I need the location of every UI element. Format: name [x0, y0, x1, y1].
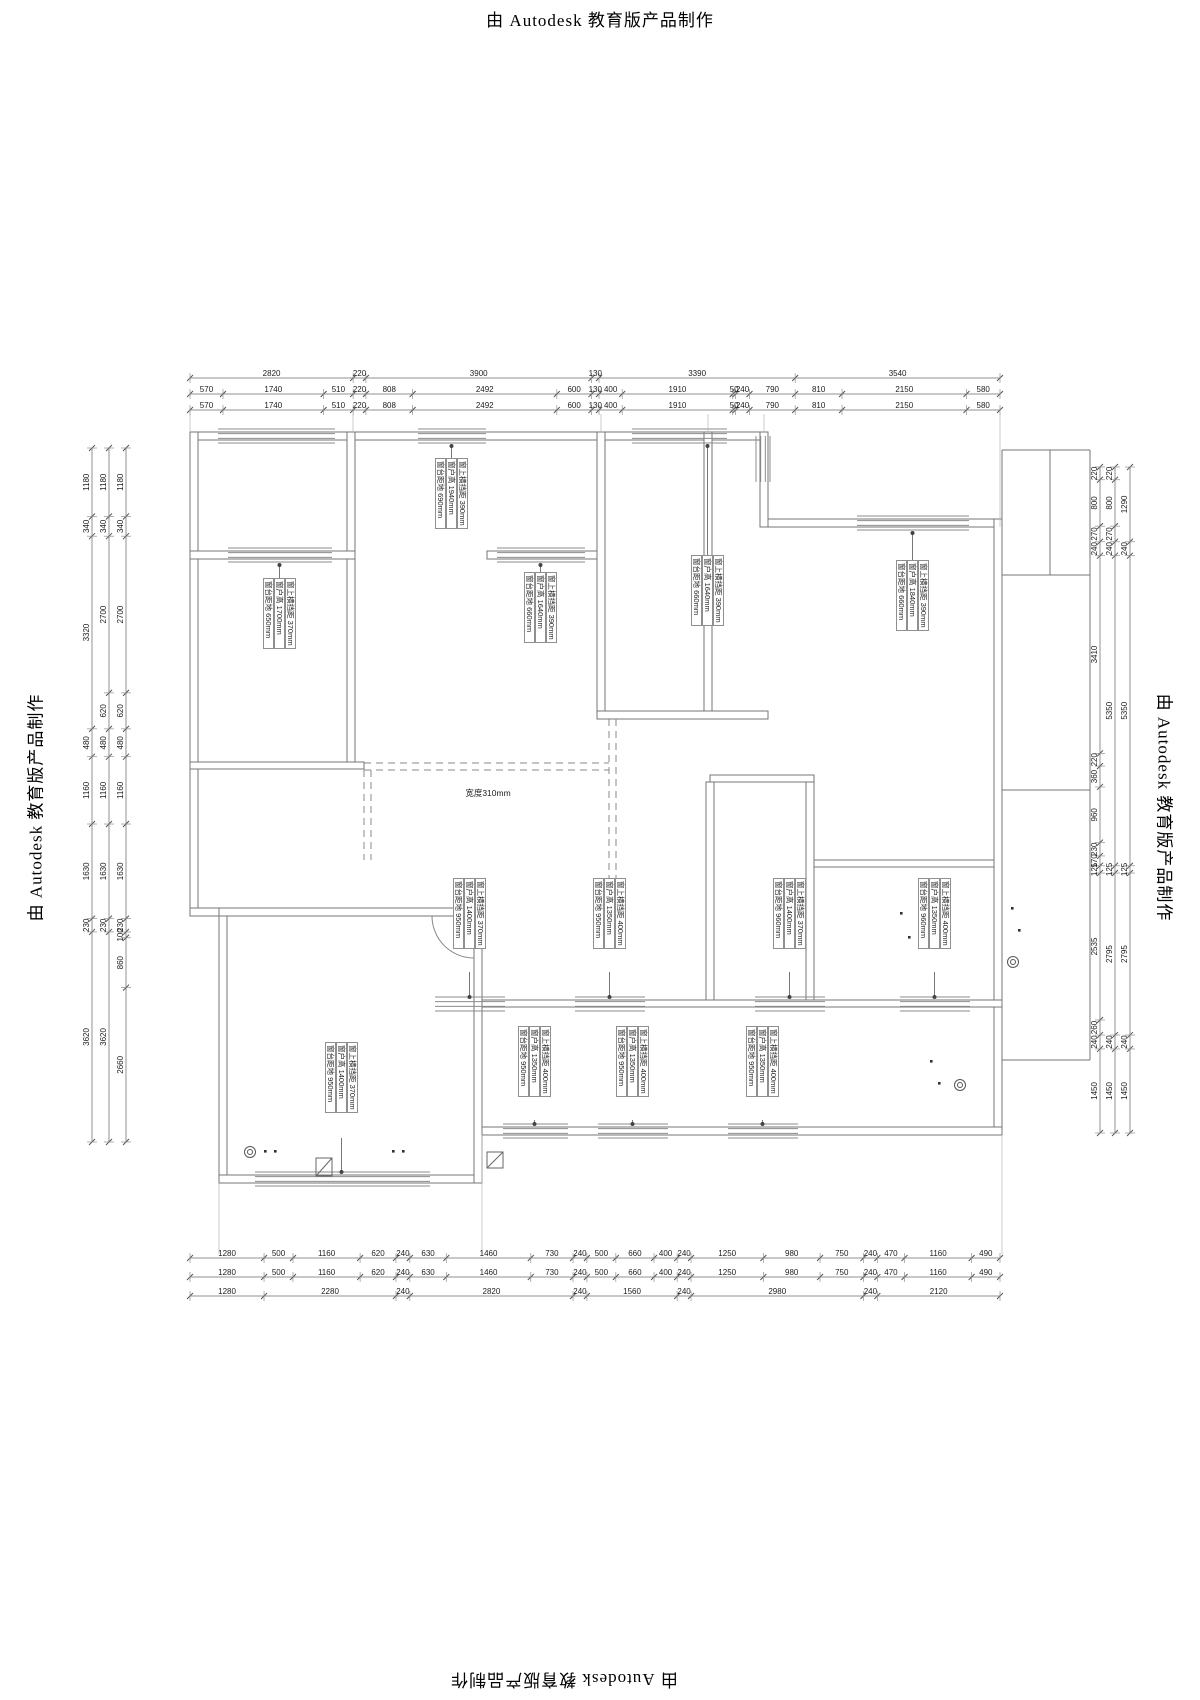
dim-value: 125: [1120, 862, 1129, 876]
dim-value: 1160: [929, 1249, 947, 1258]
dim-value: 790: [766, 385, 780, 394]
dim-value: 240: [396, 1249, 410, 1258]
dim-value: 220: [1090, 466, 1099, 480]
dim-value: 2492: [476, 401, 494, 410]
dim-value: 1280: [218, 1249, 236, 1258]
dim-value: 510: [332, 385, 346, 394]
dim-value: 1280: [218, 1287, 236, 1296]
dim-value: 730: [545, 1268, 559, 1277]
dim-value: 1250: [718, 1249, 736, 1258]
dim-value: 1250: [718, 1268, 736, 1277]
dim-value: 130: [589, 401, 603, 410]
dim-value: 240: [677, 1287, 691, 1296]
dim-value: 1180: [116, 473, 125, 491]
dim-value: 2820: [263, 369, 281, 378]
dim-value: 810: [812, 401, 826, 410]
dim-value: 470: [884, 1268, 898, 1277]
dim-value: 3320: [82, 623, 91, 641]
dim-value: 240: [396, 1268, 410, 1277]
dim-value: 3620: [82, 1028, 91, 1046]
opening-width-label: 宽度310mm: [465, 788, 510, 798]
dim-value: 400: [659, 1249, 673, 1258]
dim-value: 600: [567, 401, 581, 410]
dim-value: 500: [272, 1249, 286, 1258]
dim-value: 240: [573, 1287, 587, 1296]
dim-value: 570: [200, 385, 214, 394]
dim-value: 1460: [480, 1268, 498, 1277]
dim-value: 340: [116, 519, 125, 533]
dim-value: 400: [604, 401, 618, 410]
dim-value: 5350: [1120, 701, 1129, 719]
dim-value: 630: [421, 1268, 435, 1277]
dim-value: 960: [1090, 808, 1099, 822]
dim-value: 1630: [116, 862, 125, 880]
dim-value: 510: [332, 401, 346, 410]
dim-value: 1740: [264, 401, 282, 410]
dim-value: 240: [573, 1268, 587, 1277]
dim-value: 2660: [116, 1055, 125, 1073]
dim-value: 600: [567, 385, 581, 394]
dim-value: 500: [595, 1249, 609, 1258]
floor-plan-drawing: 2820220390013033903540570174051022080824…: [0, 0, 1200, 1700]
dim-value: 400: [659, 1268, 673, 1277]
dim-value: 230: [1090, 842, 1099, 856]
dim-value: 240: [864, 1287, 878, 1296]
dim-value: 3410: [1090, 645, 1099, 663]
dim-value: 660: [628, 1268, 642, 1277]
dim-value: 130: [589, 385, 603, 394]
dim-value: 240: [736, 401, 750, 410]
dim-value: 620: [116, 704, 125, 718]
dim-value: 1160: [929, 1268, 947, 1277]
dim-value: 240: [864, 1268, 878, 1277]
dim-value: 500: [272, 1268, 286, 1277]
dim-value: 3620: [99, 1028, 108, 1046]
dim-value: 125: [1090, 862, 1099, 876]
dim-value: 2700: [116, 605, 125, 623]
dim-value: 1280: [218, 1268, 236, 1277]
dim-value: 2120: [930, 1287, 948, 1296]
dim-value: 3390: [688, 369, 706, 378]
dim-value: 750: [835, 1268, 849, 1277]
dim-value: 1160: [82, 781, 91, 799]
dim-value: 790: [766, 401, 780, 410]
dim-value: 2150: [895, 401, 913, 410]
dim-value: 3900: [470, 369, 488, 378]
dim-value: 580: [977, 401, 991, 410]
dim-value: 730: [545, 1249, 559, 1258]
dim-value: 1560: [623, 1287, 641, 1296]
dim-value: 570: [200, 401, 214, 410]
dim-value: 2535: [1090, 937, 1099, 955]
dim-value: 1630: [99, 862, 108, 880]
dim-value: 220: [1105, 466, 1114, 480]
dim-value: 980: [785, 1249, 799, 1258]
dim-value: 630: [421, 1249, 435, 1258]
dim-value: 2150: [895, 385, 913, 394]
dim-value: 260: [1090, 1020, 1099, 1034]
dim-value: 490: [979, 1249, 993, 1258]
dim-value: 810: [812, 385, 826, 394]
dim-value: 240: [573, 1249, 587, 1258]
dim-value: 480: [99, 736, 108, 750]
dim-value: 240: [1120, 542, 1129, 556]
dim-value: 808: [383, 401, 397, 410]
dim-value: 270: [1090, 527, 1099, 541]
dim-value: 1910: [669, 401, 687, 410]
dim-value: 1460: [480, 1249, 498, 1258]
dim-value: 2280: [321, 1287, 339, 1296]
dim-value: 2795: [1120, 945, 1129, 963]
dim-value: 400: [604, 385, 618, 394]
dim-value: 240: [1090, 1035, 1099, 1049]
dim-value: 340: [99, 519, 108, 533]
dim-value: 340: [82, 519, 91, 533]
dim-value: 500: [595, 1268, 609, 1277]
dim-value: 1180: [99, 473, 108, 491]
dim-value: 270: [1105, 527, 1114, 541]
generated-linework: 2820220390013033903540570174051022080824…: [82, 369, 1135, 1301]
dim-value: 125: [1105, 862, 1114, 876]
dim-value: 1290: [1120, 495, 1129, 513]
dim-value: 470: [884, 1249, 898, 1258]
dim-value: 130: [589, 369, 603, 378]
dim-value: 620: [371, 1268, 385, 1277]
dim-value: 660: [628, 1249, 642, 1258]
dim-value: 220: [1090, 752, 1099, 766]
dim-value: 1160: [99, 781, 108, 799]
dim-value: 100: [116, 928, 125, 942]
dim-value: 240: [677, 1249, 691, 1258]
dim-value: 230: [82, 918, 91, 932]
dim-value: 620: [99, 704, 108, 718]
dim-value: 1160: [116, 781, 125, 799]
dim-value: 240: [677, 1268, 691, 1277]
dim-value: 220: [353, 369, 367, 378]
dim-value: 1740: [264, 385, 282, 394]
dim-value: 620: [371, 1249, 385, 1258]
dim-value: 1450: [1105, 1082, 1114, 1100]
dim-value: 240: [1105, 1035, 1114, 1049]
dim-value: 1160: [318, 1268, 336, 1277]
dim-value: 230: [99, 918, 108, 932]
dim-value: 2980: [768, 1287, 786, 1296]
dim-value: 240: [396, 1287, 410, 1296]
dim-value: 750: [835, 1249, 849, 1258]
dim-value: 1450: [1090, 1082, 1099, 1100]
dim-value: 1160: [318, 1249, 336, 1258]
dim-value: 980: [785, 1268, 799, 1277]
dim-value: 1630: [82, 862, 91, 880]
dim-value: 2795: [1105, 945, 1114, 963]
dim-value: 240: [1120, 1035, 1129, 1049]
dim-value: 3540: [889, 369, 907, 378]
dim-value: 220: [353, 401, 367, 410]
dim-value: 2700: [99, 605, 108, 623]
dim-value: 240: [864, 1249, 878, 1258]
dim-value: 2820: [483, 1287, 501, 1296]
dim-value: 480: [82, 736, 91, 750]
dim-value: 860: [116, 955, 125, 969]
dim-value: 240: [736, 385, 750, 394]
dim-value: 480: [116, 736, 125, 750]
dim-value: 1180: [82, 473, 91, 491]
dim-value: 240: [1090, 542, 1099, 556]
dim-value: 490: [979, 1268, 993, 1277]
dim-value: 580: [977, 385, 991, 394]
dim-value: 5350: [1105, 701, 1114, 719]
dim-value: 800: [1105, 496, 1114, 510]
dim-value: 220: [353, 385, 367, 394]
dim-value: 360: [1090, 769, 1099, 783]
dim-value: 2492: [476, 385, 494, 394]
dim-value: 1910: [669, 385, 687, 394]
dim-value: 240: [1105, 542, 1114, 556]
dim-value: 1450: [1120, 1082, 1129, 1100]
dim-value: 800: [1090, 496, 1099, 510]
dim-value: 808: [383, 385, 397, 394]
